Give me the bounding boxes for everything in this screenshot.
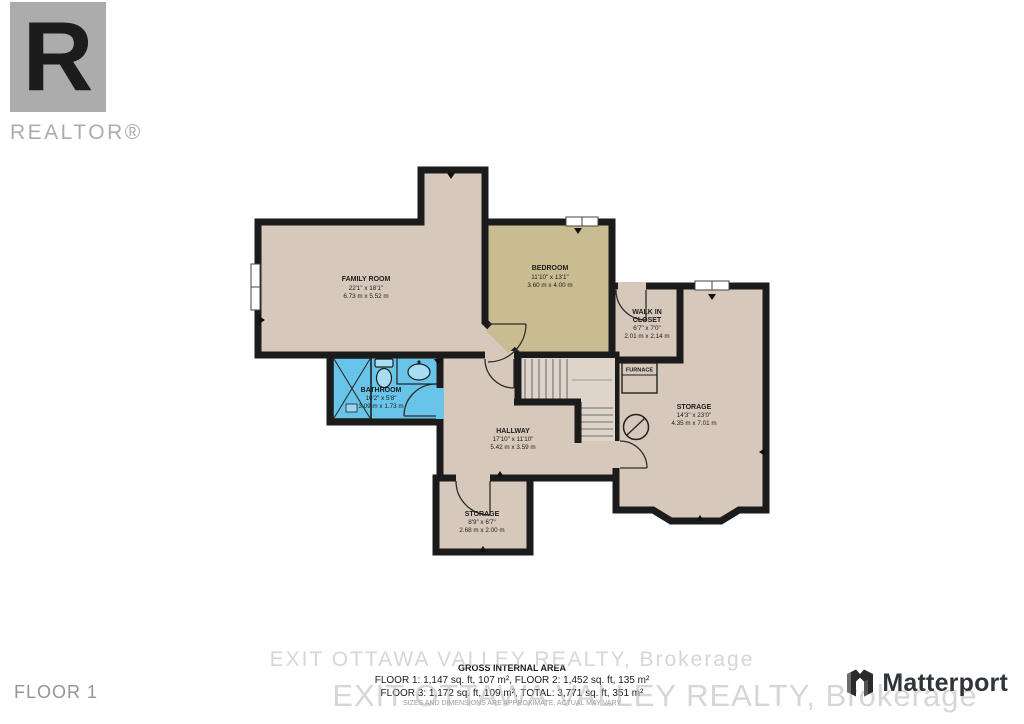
floor-plan: FURNACE FAMILY ROOM 22'1" x 18'1" 6.73 m… bbox=[0, 0, 1024, 724]
room-label: STORAGE bbox=[465, 511, 500, 518]
room-dims-m: 4.35 m x 7.01 m bbox=[671, 420, 716, 427]
sink-faucet bbox=[417, 360, 420, 363]
room-dims-m: 5.42 m x 3.59 m bbox=[490, 444, 535, 451]
window-icon bbox=[712, 281, 729, 290]
door-opening bbox=[436, 388, 444, 419]
furnace-label: FURNACE bbox=[626, 368, 654, 374]
window-icon bbox=[566, 217, 582, 226]
room-dims-m: 2.01 m x 2.14 m bbox=[624, 333, 669, 340]
rooms-geometry bbox=[258, 170, 766, 552]
door-opening bbox=[612, 441, 620, 468]
door-opening bbox=[456, 474, 490, 482]
room-label: STORAGE bbox=[677, 404, 712, 411]
floorplan-page: { "branding": { "realtor_wordmark": "REA… bbox=[0, 0, 1024, 724]
window-icon bbox=[251, 287, 260, 310]
room-dims-ft: 10'2" x 5'8" bbox=[365, 395, 396, 402]
room-label: BATHROOM bbox=[361, 387, 402, 394]
room-dims-ft: 8'9" x 6'7" bbox=[468, 519, 496, 526]
toilet-bowl bbox=[377, 369, 392, 388]
window-icon bbox=[582, 217, 598, 226]
room-dims-ft: 6'7" x 7'0" bbox=[633, 325, 661, 332]
room-label: CLOSET bbox=[633, 317, 662, 324]
room-dims-ft: 22'1" x 18'1" bbox=[349, 285, 384, 292]
shower-drain bbox=[346, 404, 357, 412]
door-opening bbox=[618, 282, 646, 290]
toilet-icon bbox=[375, 359, 393, 367]
room-label: FAMILY ROOM bbox=[342, 276, 391, 283]
room-dims-m: 2.68 m x 2.00 m bbox=[459, 527, 504, 534]
room-dims-ft: 11'10" x 13'1" bbox=[531, 274, 569, 281]
room-dims-m: 3.60 m x 4.00 m bbox=[527, 282, 572, 289]
room-dims-m: 3.09 m x 1.73 m bbox=[358, 403, 403, 410]
room-dims-m: 6.73 m x 5.52 m bbox=[343, 293, 388, 300]
matterport-wordmark: Matterport bbox=[882, 669, 1008, 698]
sink-icon bbox=[408, 364, 430, 380]
room-label: WALK IN bbox=[632, 309, 662, 316]
floor-label: FLOOR 1 bbox=[14, 682, 98, 703]
room-family-room-floor bbox=[258, 170, 518, 355]
footer-disclaimer: SIZES AND DIMENSIONS ARE APPROXIMATE, AC… bbox=[0, 700, 1024, 707]
matterport-icon bbox=[846, 668, 874, 698]
room-dims-ft: 14'3" x 23'0" bbox=[677, 412, 712, 419]
window-icon bbox=[695, 281, 712, 290]
window-icon bbox=[251, 264, 260, 287]
matterport-logo: Matterport bbox=[846, 668, 1008, 698]
room-label: HALLWAY bbox=[496, 428, 530, 435]
room-dims-ft: 17'10" x 11'10" bbox=[492, 436, 533, 443]
room-label: BEDROOM bbox=[532, 265, 569, 272]
